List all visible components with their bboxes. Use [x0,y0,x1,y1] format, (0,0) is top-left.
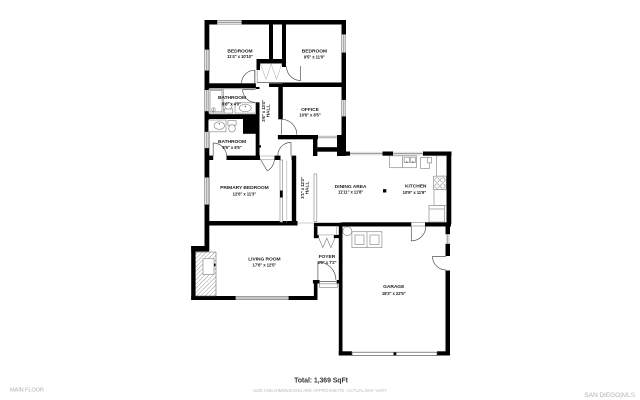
svg-text:KITCHEN: KITCHEN [405,184,427,190]
svg-text:9'5" x 11'0": 9'5" x 11'0" [304,54,325,59]
svg-text:11'4" x 10'10": 11'4" x 10'10" [227,54,253,59]
svg-text:3'1" x 12'3": 3'1" x 12'3" [300,177,305,198]
svg-text:8'6" x 4'0": 8'6" x 4'0" [222,102,241,107]
svg-text:11'11" x 11'8": 11'11" x 11'8" [338,190,363,195]
svg-text:4'5" x 7'2": 4'5" x 7'2" [317,260,336,265]
svg-text:PRIMARY BEDROOM: PRIMARY BEDROOM [220,185,268,191]
svg-text:Total: 1,369 SqFt: Total: 1,369 SqFt [294,377,349,384]
svg-text:10'9" x 11'9": 10'9" x 11'9" [403,190,427,195]
svg-text:LIVING ROOM: LIVING ROOM [248,257,280,263]
svg-text:FOYER: FOYER [319,254,336,260]
svg-text:BATHROOM: BATHROOM [218,95,246,101]
svg-text:8'6" x 6'5": 8'6" x 6'5" [222,145,241,150]
svg-text:3'6" x 13'4": 3'6" x 13'4" [261,100,266,121]
svg-text:10'6" x 8'5": 10'6" x 8'5" [299,113,320,118]
svg-text:MAIN FLOOR: MAIN FLOOR [10,388,44,394]
svg-text:SIZE AND DIMENSIONS ARE APPROX: SIZE AND DIMENSIONS ARE APPROXIMATE, ACT… [253,388,387,393]
svg-text:HALL: HALL [266,105,272,118]
svg-text:18'3" x 22'5": 18'3" x 22'5" [382,291,406,296]
svg-text:12'6" x 11'3": 12'6" x 11'3" [233,192,257,197]
svg-text:17'6" x 12'5": 17'6" x 12'5" [253,263,277,268]
svg-text:HALL: HALL [305,182,311,195]
svg-text:SAN DIEGO|MLS: SAN DIEGO|MLS [584,392,635,399]
svg-text:GARAGE: GARAGE [383,284,405,290]
